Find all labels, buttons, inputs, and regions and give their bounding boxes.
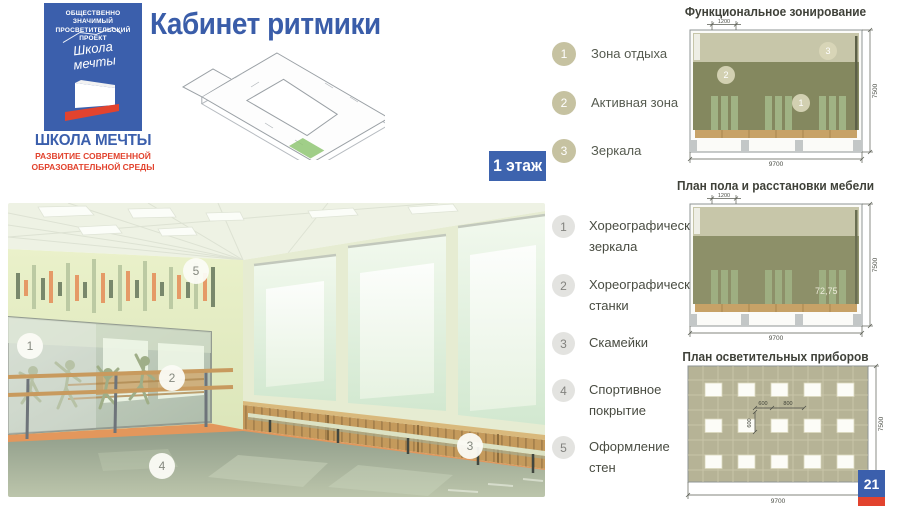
feature-legend-item-3: 3 Скамейки xyxy=(552,332,692,355)
diagram1-title: Функциональное зонирование xyxy=(673,5,877,19)
zone-legend-item-3: 3 Зеркала xyxy=(552,139,692,163)
feature-number-badge: 4 xyxy=(552,379,575,402)
dim-1200: 1200 xyxy=(718,19,730,25)
zone-legend-item-1: 1 Зона отдыха xyxy=(552,42,692,66)
diagram1-marker-1: 1 xyxy=(792,94,810,112)
diagram1-marker-3: 3 xyxy=(819,42,837,60)
dim-800: 800 xyxy=(783,401,792,407)
dim-7500: 7500 xyxy=(872,83,879,98)
logo: ОБЩЕСТВЕННО ЗНАЧИМЫЙ ПРОСВЕТИТЕЛЬСКИЙ ПР… xyxy=(44,3,142,131)
zone-number-badge: 3 xyxy=(552,139,576,163)
photo-marker-2: 2 xyxy=(159,365,185,391)
dim-9700: 9700 xyxy=(771,498,786,505)
floorplan-isometric xyxy=(165,45,385,160)
diagram2-title: План пола и расстановки мебели xyxy=(673,179,877,193)
area-label: 72,75 xyxy=(815,286,838,296)
dim-9700: 9700 xyxy=(769,161,784,168)
feature-number-badge: 5 xyxy=(552,436,575,459)
photo-marker-3: 3 xyxy=(457,433,483,459)
svg-text:2: 2 xyxy=(169,371,176,385)
dim-1200: 1200 xyxy=(718,193,730,199)
photo-marker-1: 1 xyxy=(17,333,43,359)
feature-number-badge: 1 xyxy=(552,215,575,238)
zone-number-badge: 2 xyxy=(552,91,576,115)
feature-number-badge: 2 xyxy=(552,274,575,297)
dim-7500: 7500 xyxy=(878,416,885,431)
feature-legend-item-5: 5 Оформление стен xyxy=(552,436,692,478)
logo-subtitle: РАЗВИТИЕ СОВРЕМЕННОЙ ОБРАЗОВАТЕЛЬНОЙ СРЕ… xyxy=(28,151,158,173)
room-photo: 1 2 3 4 5 xyxy=(8,203,545,497)
svg-text:3: 3 xyxy=(467,439,474,453)
diagram1-marker-2: 2 xyxy=(717,66,735,84)
dim-600-v: 600 xyxy=(747,418,753,427)
feature-legend-item-2: 2 Хореографические станки xyxy=(552,274,692,316)
svg-text:5: 5 xyxy=(193,264,200,278)
svg-text:3: 3 xyxy=(825,46,830,56)
room-render: 1 2 3 4 5 xyxy=(8,203,545,497)
svg-text:2: 2 xyxy=(723,70,728,80)
feature-legend-item-4: 4 Спортивное покрытие xyxy=(552,379,692,421)
feature-number-badge: 3 xyxy=(552,332,575,355)
page-title: Кабинет ритмики xyxy=(150,6,381,42)
svg-text:1: 1 xyxy=(27,339,34,353)
school-building-icon xyxy=(63,79,123,123)
logo-name: ШКОЛА МЕЧТЫ xyxy=(33,132,153,150)
zone-number-badge: 1 xyxy=(552,42,576,66)
svg-text:4: 4 xyxy=(159,459,166,473)
dim-600: 600 xyxy=(758,401,767,407)
diagram-furniture-plan: 72,75 1200 9700 7500 xyxy=(683,192,900,342)
floor-badge: 1 этаж xyxy=(489,151,546,181)
photo-marker-5: 5 xyxy=(183,258,209,284)
page-number-accent xyxy=(858,497,885,506)
zone-legend-item-2: 2 Активная зона xyxy=(552,91,692,115)
svg-text:1: 1 xyxy=(798,98,803,108)
feature-legend-item-1: 1 Хореографические зеркала xyxy=(552,215,692,257)
photo-marker-4: 4 xyxy=(149,453,175,479)
dim-9700: 9700 xyxy=(769,335,784,342)
page-number: 21 xyxy=(858,470,885,497)
dim-7500: 7500 xyxy=(872,257,879,272)
diagram-zoning-plan: 2 1 3 1200 9700 7500 xyxy=(683,18,900,168)
